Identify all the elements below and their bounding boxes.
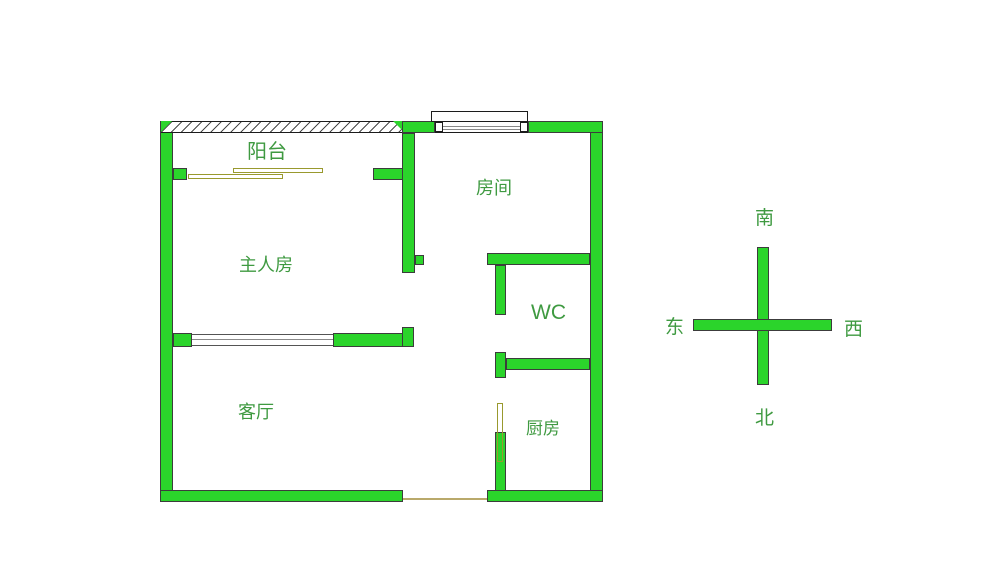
living-room-label: 客厅 <box>238 403 274 421</box>
bedroom-window <box>435 121 528 133</box>
balcony-sliding-door-leaf <box>188 174 283 179</box>
window-glass-line <box>443 129 520 130</box>
wc-top-wall <box>487 253 590 265</box>
compass-north-label: 北 <box>755 409 774 428</box>
hatch-corner-wedge-right <box>393 121 402 130</box>
compass-horizontal-bar <box>693 319 832 331</box>
livingroom-wall-up-stub <box>402 327 414 347</box>
window-glass-line <box>192 339 333 340</box>
bedroom-divider-wall <box>402 133 415 273</box>
balcony-sliding-door-leaf <box>233 168 323 173</box>
compass-west-label: 西 <box>844 320 863 339</box>
wc-kitchen-divider-wall <box>506 358 590 370</box>
kitchen-door-leaf <box>497 403 503 462</box>
balcony-divider-stub-left <box>173 168 187 180</box>
bedroom-label: 房间 <box>476 179 512 197</box>
window-glass-line <box>443 126 520 127</box>
top-wall-segment-b <box>528 121 603 133</box>
balcony-outer-window-hatch <box>161 121 402 133</box>
compass-east-label: 东 <box>665 318 684 337</box>
balcony-label: 阳台 <box>247 142 287 162</box>
left-wall <box>160 121 173 502</box>
bedroom-divider-stub <box>415 255 424 265</box>
bottom-wall-left <box>160 490 403 502</box>
window-post-icon <box>435 122 443 132</box>
wc-kitchen-divider-stub <box>495 352 506 378</box>
master-bedroom-label: 主人房 <box>239 256 293 274</box>
wc-left-wall <box>495 265 506 315</box>
bottom-wall-kitchen <box>487 490 603 502</box>
wc-label: WC <box>531 302 566 323</box>
balcony-divider-stub-right <box>373 168 403 180</box>
top-wall-segment-a <box>402 121 435 133</box>
kitchen-label: 厨房 <box>526 420 560 437</box>
right-wall <box>590 121 603 502</box>
window-post-icon <box>520 122 528 132</box>
entrance-opening-line <box>403 498 487 500</box>
compass-south-label: 南 <box>755 209 774 228</box>
livingroom-wall-stub-left <box>173 333 192 347</box>
livingroom-window <box>192 334 333 346</box>
hatch-corner-wedge-left <box>161 121 172 132</box>
floorplan-canvas: 阳台 主人房 房间 WC 客厅 厨房 南 北 东 西 <box>0 0 1000 568</box>
compass-vertical-bar <box>757 247 769 385</box>
